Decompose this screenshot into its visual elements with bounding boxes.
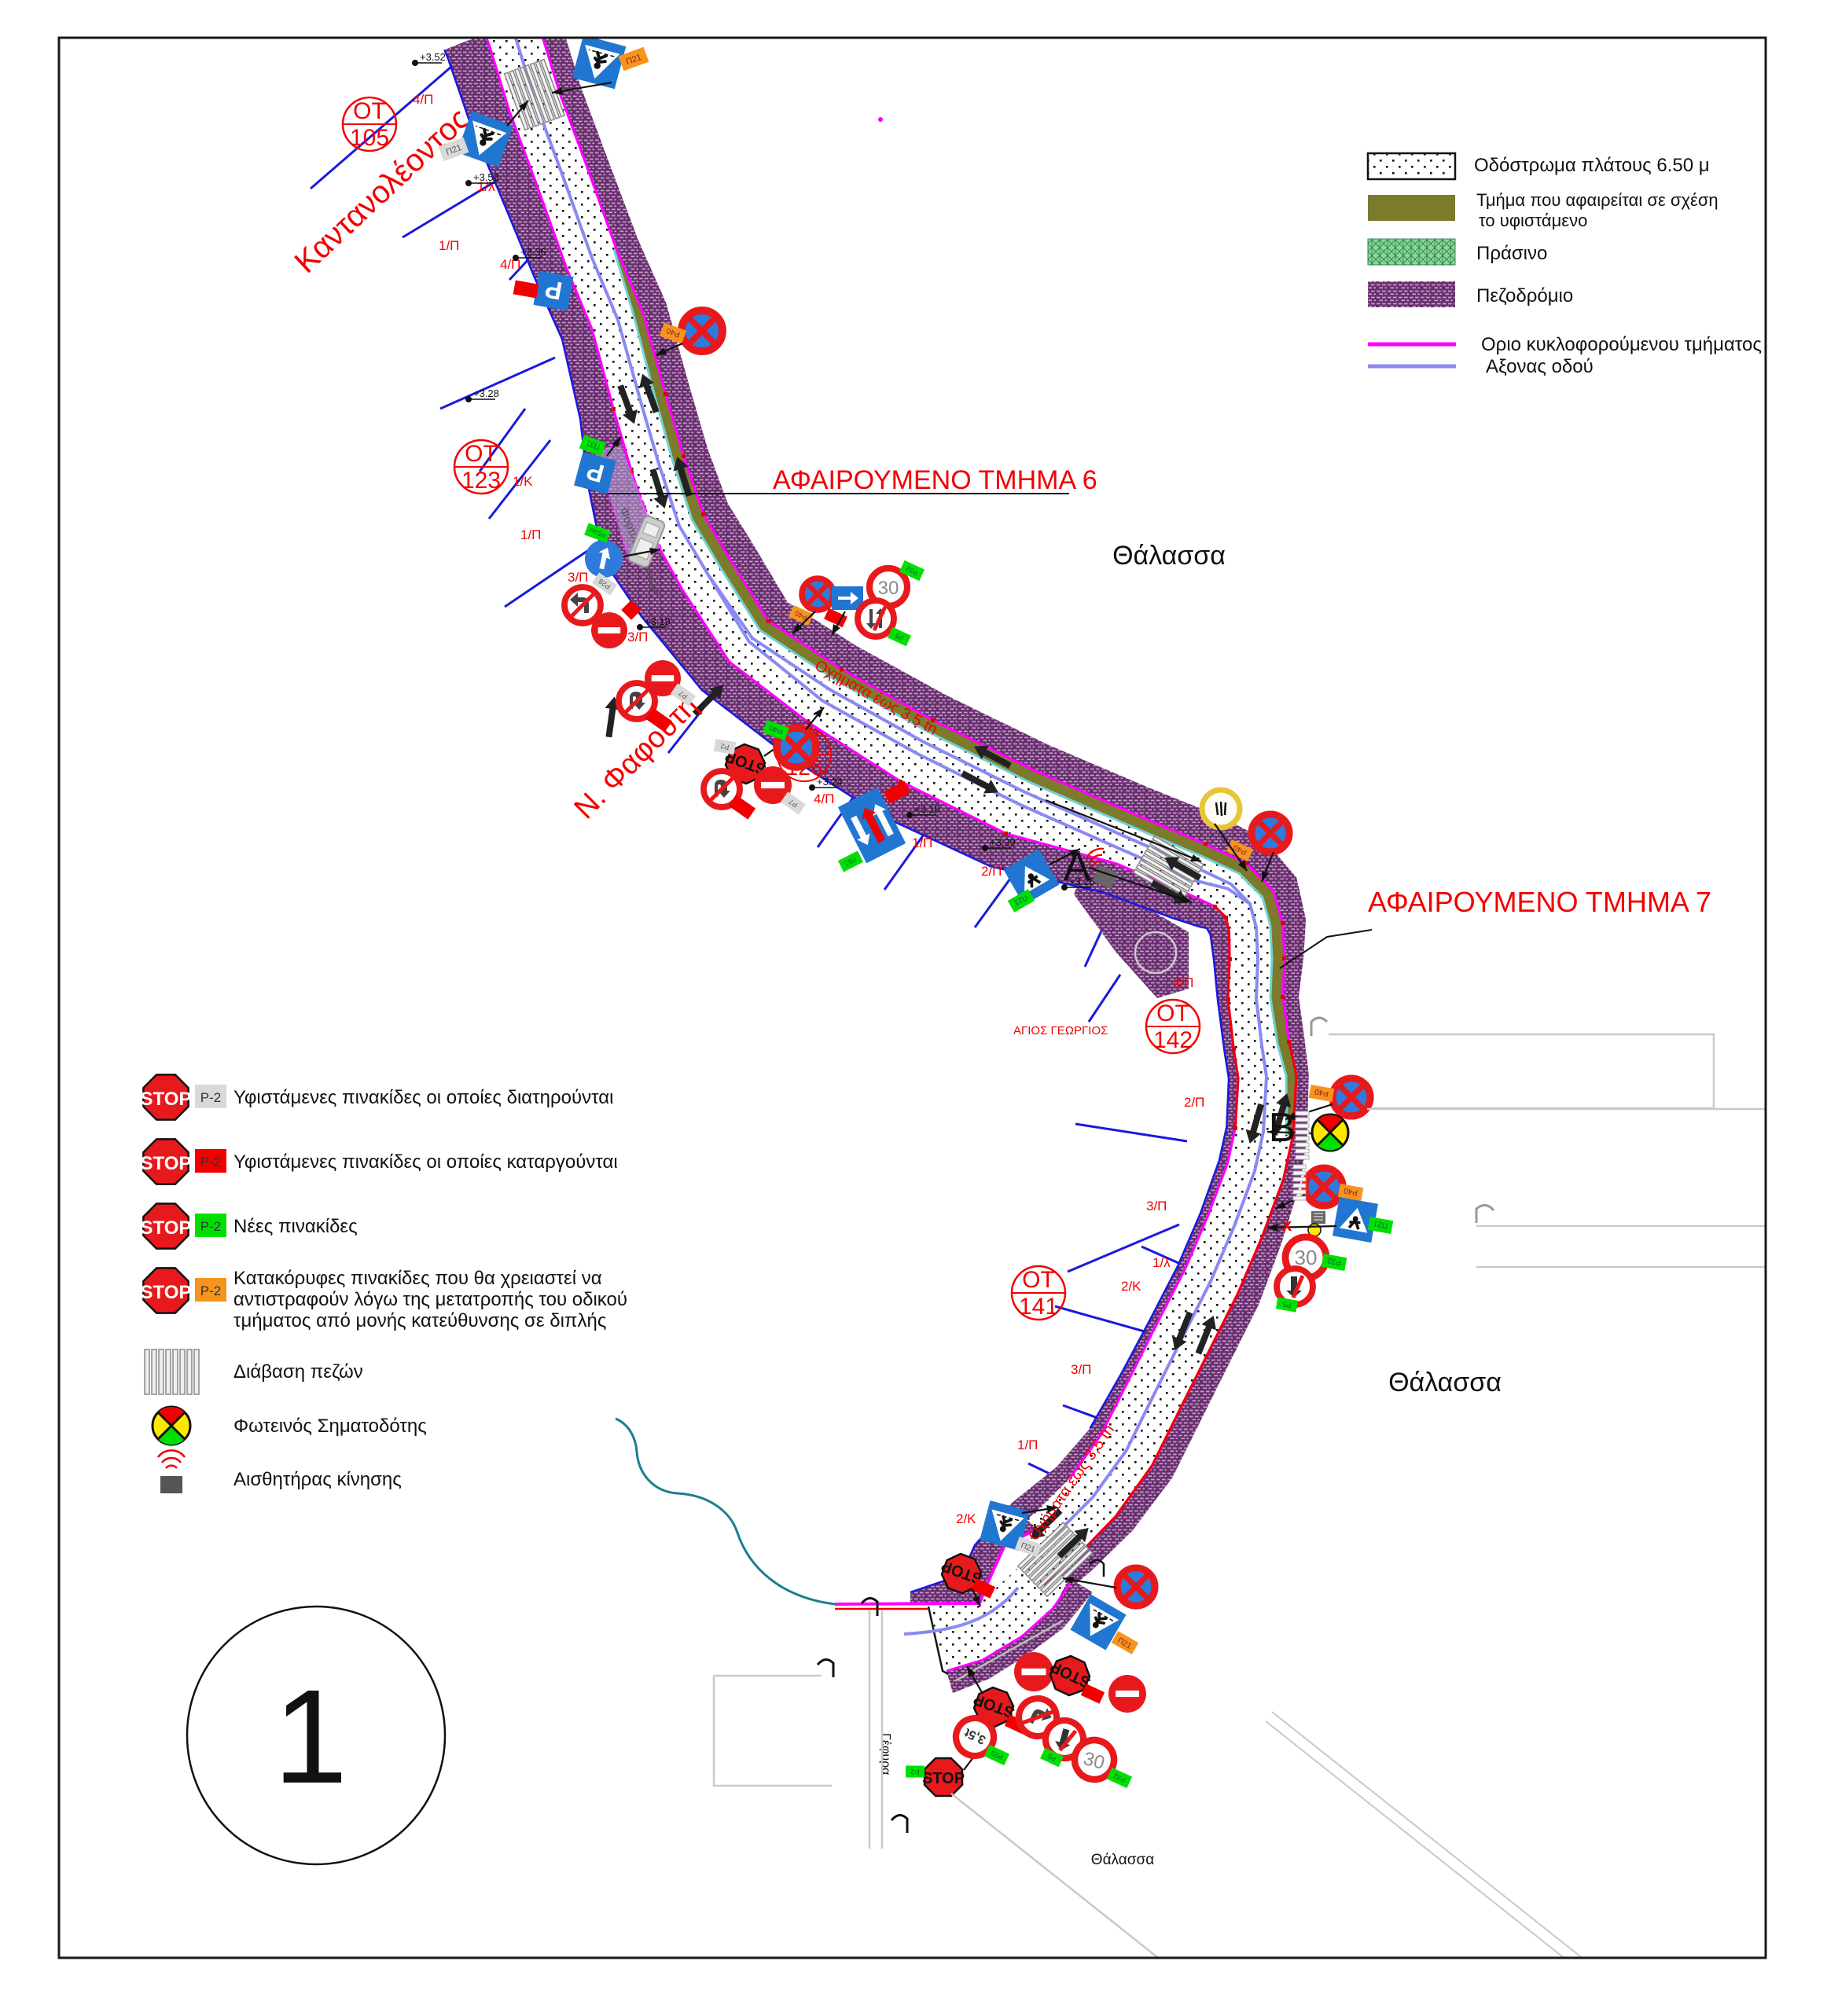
- svg-text:STOP: STOP: [922, 1770, 965, 1787]
- svg-text:Γέφυρα: Γέφυρα: [879, 1733, 892, 1775]
- svg-text:STOP: STOP: [141, 1153, 192, 1174]
- svg-text:Νέες πινακίδες: Νέες πινακίδες: [233, 1216, 358, 1237]
- svg-text:4/Π: 4/Π: [413, 92, 433, 107]
- svg-text:Πράσινο: Πράσινο: [1476, 243, 1547, 264]
- svg-text:2/Π: 2/Π: [1184, 1095, 1204, 1110]
- svg-text:OT: OT: [465, 441, 498, 467]
- svg-text:1/Π: 1/Π: [912, 835, 932, 850]
- svg-text:Ρ-2: Ρ-2: [200, 1090, 221, 1105]
- svg-text:ΑΦΑΙΡΟΥΜΕΝΟ ΤΜΗΜΑ 7: ΑΦΑΙΡΟΥΜΕΝΟ ΤΜΗΜΑ 7: [1368, 886, 1711, 918]
- svg-text:Αισθητήρας κίνησης: Αισθητήρας κίνησης: [233, 1469, 402, 1490]
- svg-text:Υφιστάμενες πινακίδες οι οποίε: Υφιστάμενες πινακίδες οι οποίες διατηρού…: [233, 1087, 613, 1108]
- svg-text:1/K: 1/K: [513, 474, 533, 489]
- svg-text:+3.28: +3.28: [473, 387, 499, 399]
- svg-text:+3.53: +3.53: [473, 171, 499, 183]
- svg-text:30: 30: [878, 578, 899, 599]
- svg-text:Ρ-2: Ρ-2: [200, 1219, 221, 1234]
- svg-text:Κατακόρυφες πινακίδες που θα χ: Κατακόρυφες πινακίδες που θα χρειαστεί ν…: [233, 1268, 602, 1289]
- svg-text:123: 123: [461, 468, 501, 494]
- svg-text:141: 141: [1019, 1294, 1058, 1320]
- svg-text:τμήματος από μονής κατεύθυνσης: τμήματος από μονής κατεύθυνσης σε διπλής: [233, 1310, 606, 1331]
- svg-text:3/Π: 3/Π: [1146, 1199, 1167, 1214]
- svg-text:Πεζοδρόμιο: Πεζοδρόμιο: [1476, 285, 1573, 307]
- svg-text:2/K: 2/K: [1121, 1279, 1141, 1294]
- svg-text:STOP: STOP: [141, 1089, 192, 1110]
- svg-text:1/λ: 1/λ: [1152, 1255, 1171, 1270]
- svg-text:OT: OT: [1156, 1001, 1189, 1026]
- svg-text:P2: P2: [910, 1768, 919, 1775]
- svg-text:4/Π: 4/Π: [814, 791, 834, 806]
- svg-text:Τμήμα που αφαιρείται σε σχέση: Τμήμα που αφαιρείται σε σχέση: [1476, 190, 1719, 210]
- svg-text:1: 1: [274, 1662, 348, 1812]
- svg-text:Φωτεινός Σηματοδότης: Φωτεινός Σηματοδότης: [233, 1416, 427, 1437]
- svg-text:1/Π: 1/Π: [439, 238, 459, 253]
- svg-text:P2: P2: [720, 742, 730, 751]
- svg-text:4/Π: 4/Π: [1173, 975, 1193, 990]
- svg-text:ΑΦΑΙΡΟΥΜΕΝΟ ΤΜΗΜΑ 6: ΑΦΑΙΡΟΥΜΕΝΟ ΤΜΗΜΑ 6: [773, 465, 1097, 495]
- svg-text:2/K: 2/K: [956, 1511, 976, 1526]
- svg-text:+3.10: +3.10: [914, 803, 940, 815]
- svg-text:+3.19: +3.19: [645, 615, 671, 627]
- svg-text:OT: OT: [353, 98, 386, 124]
- svg-text:STOP: STOP: [141, 1282, 192, 1303]
- svg-text:x: x: [1282, 1215, 1292, 1235]
- svg-text:+3.39: +3.39: [990, 836, 1016, 848]
- svg-text:B: B: [1269, 1105, 1296, 1151]
- svg-text:Διάβαση πεζών: Διάβαση πεζών: [233, 1361, 363, 1383]
- svg-text:2/Π: 2/Π: [981, 864, 1002, 879]
- svg-text:αντιστραφούν λόγω της μετατροπ: αντιστραφούν λόγω της μετατροπής του οδι…: [233, 1289, 627, 1310]
- svg-text:Αξονας οδού: Αξονας οδού: [1486, 356, 1594, 377]
- svg-text:ΑΓΙΟΣ ΓΕΩΡΓΙΟΣ: ΑΓΙΟΣ ΓΕΩΡΓΙΟΣ: [1013, 1024, 1108, 1037]
- svg-text:Ρ-2: Ρ-2: [200, 1155, 221, 1170]
- svg-text:Θάλασσα: Θάλασσα: [1388, 1368, 1502, 1397]
- svg-text:Θάλασσα: Θάλασσα: [1112, 541, 1226, 571]
- svg-text:1/Π: 1/Π: [1017, 1438, 1038, 1452]
- svg-text:Θάλασσα: Θάλασσα: [1091, 1852, 1154, 1868]
- svg-text:+3.36: +3.36: [520, 246, 546, 258]
- svg-text:+3.52: +3.52: [420, 51, 446, 63]
- svg-text:Οδόστρωμα πλάτους 6.50 μ: Οδόστρωμα πλάτους 6.50 μ: [1474, 155, 1710, 176]
- svg-text:Οριο κυκλοφορούμενου τμήματος: Οριο κυκλοφορούμενου τμήματος: [1481, 334, 1762, 355]
- svg-text:142: 142: [1153, 1027, 1193, 1053]
- svg-text:P5: P5: [1282, 1300, 1292, 1309]
- svg-text:+3.28: +3.28: [1069, 876, 1095, 887]
- svg-text:το υφιστάμενο: το υφιστάμενο: [1479, 211, 1587, 230]
- svg-text:OT: OT: [1022, 1267, 1055, 1293]
- svg-text:3/Π: 3/Π: [1071, 1362, 1091, 1377]
- svg-text:3/Π: 3/Π: [627, 630, 648, 644]
- svg-text:Υφιστάμενες πινακίδες οι οποίε: Υφιστάμενες πινακίδες οι οποίες καταργού…: [233, 1151, 618, 1173]
- svg-text:+3.24: +3.24: [817, 776, 843, 788]
- svg-text:Ρ-2: Ρ-2: [200, 1283, 221, 1298]
- svg-text:3/Π: 3/Π: [568, 570, 588, 585]
- svg-text:STOP: STOP: [141, 1217, 192, 1239]
- svg-text:1/Π: 1/Π: [520, 527, 541, 542]
- svg-text:105: 105: [350, 125, 389, 151]
